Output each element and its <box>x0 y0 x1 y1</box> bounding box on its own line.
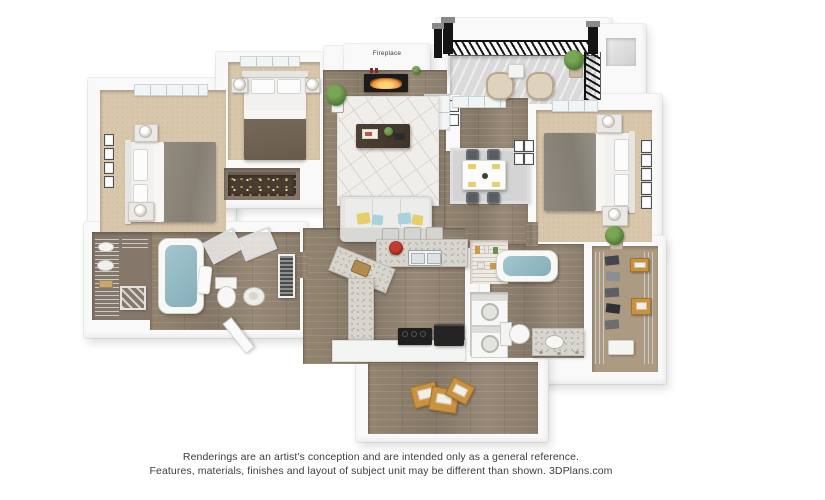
bedroom-1-window <box>134 84 208 96</box>
kitchen-counter-left <box>348 278 374 344</box>
bedroom-2-bed <box>244 74 306 160</box>
range-stove <box>398 328 432 345</box>
bedroom-1-wall-art <box>104 162 114 174</box>
toilet-bowl <box>509 324 530 344</box>
sofa-pillow-blue <box>398 212 412 224</box>
table-lamp <box>602 115 615 128</box>
hanging-clothes <box>605 319 620 329</box>
living-plant <box>326 84 346 106</box>
drying-rack <box>120 286 146 310</box>
refrigerator <box>434 324 464 346</box>
fruit-bowl <box>389 241 403 255</box>
sofa-pillow-yellow <box>356 212 370 225</box>
mantel-plant <box>412 66 420 74</box>
entry-nook-recess <box>606 38 636 66</box>
table-lamp <box>306 78 319 91</box>
mantel-candles <box>370 68 380 73</box>
master-bed <box>544 133 632 211</box>
fireplace-flue-cap <box>432 23 444 29</box>
fireplace-label: Fireplace <box>344 50 430 57</box>
bathroom-1-doorway <box>296 252 308 278</box>
table-lamp <box>134 204 147 217</box>
bedroom-1-wall-art <box>104 134 114 146</box>
balcony-post-cap <box>586 21 600 27</box>
dining-chair <box>466 192 479 204</box>
master-plant <box>605 226 624 245</box>
table-lamp <box>233 78 246 91</box>
fireplace-flame <box>370 78 402 89</box>
pedestal-sink <box>243 287 265 306</box>
dining-wall-art <box>524 140 534 152</box>
toilet-bowl <box>217 286 236 308</box>
closet-basket <box>98 242 114 252</box>
bathroom-2-tub <box>496 250 558 282</box>
closet-basket <box>97 260 114 271</box>
closet-2-rail-left <box>595 252 604 364</box>
double-sink <box>408 250 442 266</box>
sofa-pillow-yellow <box>411 214 423 226</box>
table-lamp <box>139 125 152 138</box>
master-wall-art <box>641 168 652 181</box>
louvered-utility-door <box>278 254 295 298</box>
bedroom-1-wall-art <box>104 176 114 188</box>
floorplan-canvas: Fireplace <box>0 0 825 500</box>
dining-wall-art <box>514 153 524 165</box>
patio-table <box>508 64 524 78</box>
master-window <box>552 100 598 112</box>
master-wall-art <box>641 154 652 167</box>
vanity-counter <box>532 328 584 356</box>
hanging-clothes <box>605 288 620 298</box>
living-room-rug <box>337 96 439 206</box>
table-lamp <box>608 208 621 221</box>
balcony-railing-right <box>584 52 601 100</box>
dining-wall-art <box>524 153 534 165</box>
bedroom-2-window <box>240 56 300 67</box>
master-doorway <box>526 222 538 246</box>
bathroom-1-tub <box>158 238 204 314</box>
fireplace-flue <box>434 26 442 58</box>
disclaimer-line-2: Features, materials, finishes and layout… <box>0 464 762 478</box>
dining-wall-art <box>514 140 524 152</box>
closet-storage-box <box>631 298 651 315</box>
balcony-plant <box>564 50 584 70</box>
sofa-pillow-blue <box>372 214 384 225</box>
dining-chair <box>487 192 500 204</box>
bedroom-1-wall-art <box>104 148 114 160</box>
master-wall-art <box>641 182 652 195</box>
closet-shelf-unit <box>228 172 296 196</box>
divider-wall-art <box>449 114 459 126</box>
balcony-post <box>443 20 453 54</box>
balcony-post <box>588 24 598 54</box>
patio-chair <box>526 72 554 100</box>
coffee-table <box>356 124 410 148</box>
disclaimer-line-1: Renderings are an artist's conception an… <box>0 450 762 464</box>
closet-bin <box>608 340 634 355</box>
fireplace-firebox <box>364 74 408 92</box>
closet-1-shelving-top <box>122 236 148 248</box>
hanging-clothes <box>606 271 621 281</box>
closet-storage-box <box>630 258 649 272</box>
closet-item <box>99 280 113 288</box>
master-wall-art <box>641 140 652 153</box>
dining-table <box>462 160 506 190</box>
hanging-clothes <box>606 303 621 314</box>
master-wall-art <box>641 196 652 209</box>
hanging-clothes <box>605 255 620 265</box>
